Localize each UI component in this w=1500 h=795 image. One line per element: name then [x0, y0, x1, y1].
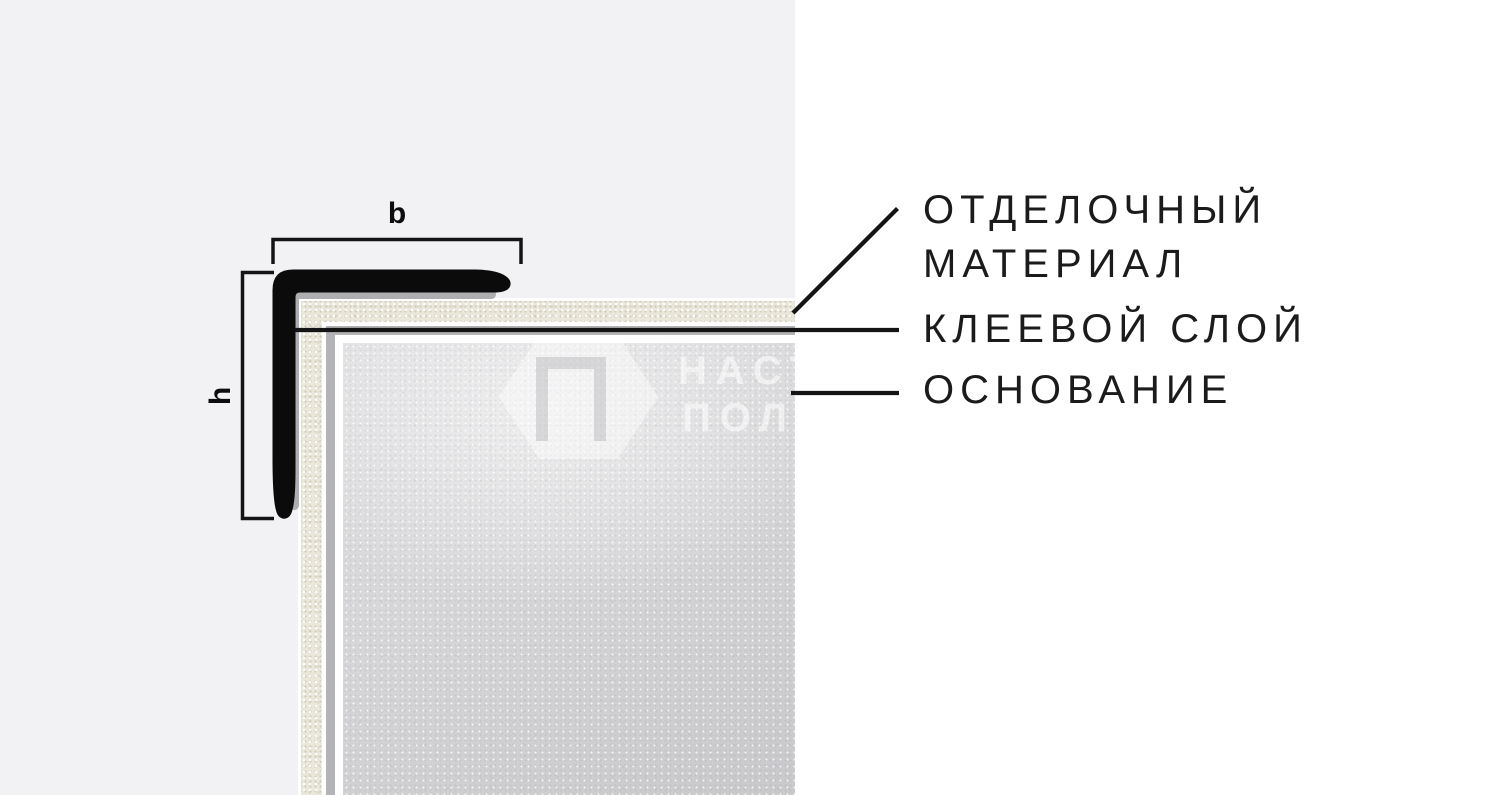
dimension-h-label: h — [206, 376, 236, 416]
label-finishing-material-line2: МАТЕРИАЛ — [923, 237, 1267, 291]
dimension-b-label: b — [377, 199, 417, 229]
label-base: ОСНОВАНИЕ — [923, 370, 1233, 410]
label-finishing-material-line1: ОТДЕЛОЧНЫЙ — [923, 183, 1267, 237]
label-finishing-material: ОТДЕЛОЧНЫЙ МАТЕРИАЛ — [923, 183, 1267, 291]
layer-base-concrete — [343, 343, 795, 795]
infographic-page: НАСТ ПОЛ b h ОТДЕЛОЧНЫЙ МАТЕРИАЛ КЛЕЕВОЙ… — [0, 0, 1500, 795]
leader-line-finishing-material — [793, 209, 898, 314]
label-adhesive-layer: КЛЕЕВОЙ СЛОЙ — [923, 309, 1308, 349]
diagram-panel: НАСТ ПОЛ — [0, 0, 795, 795]
